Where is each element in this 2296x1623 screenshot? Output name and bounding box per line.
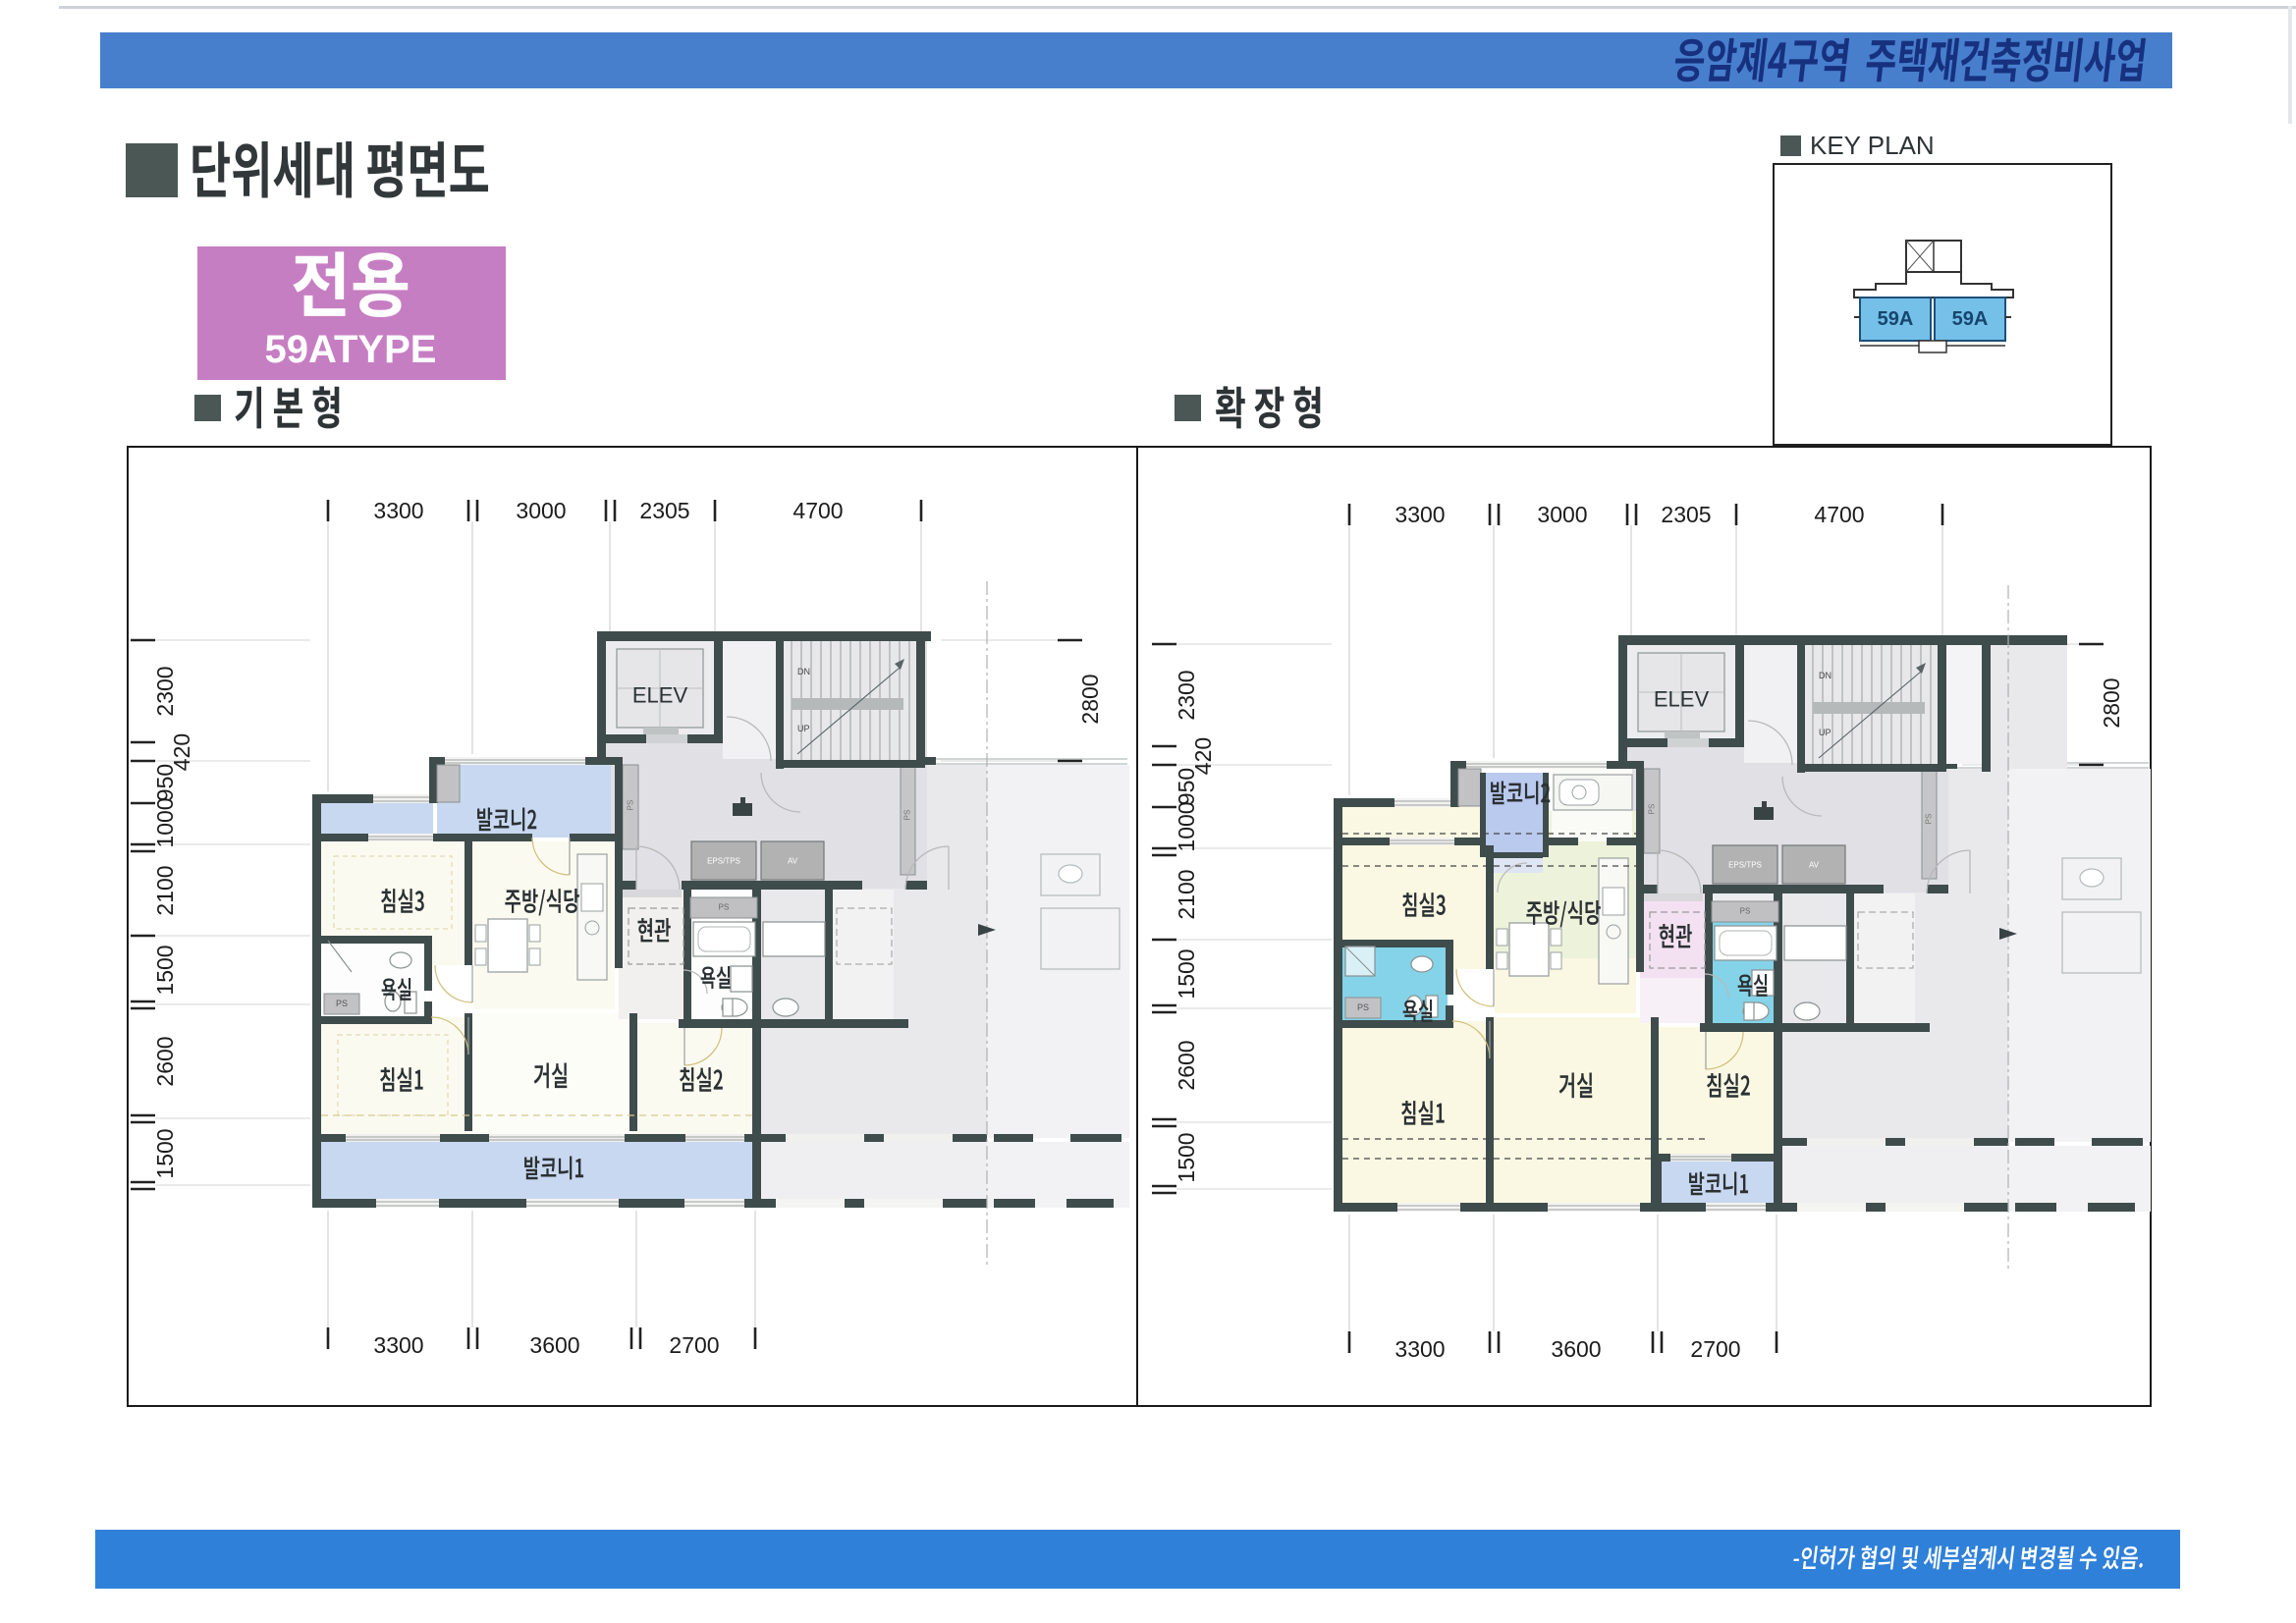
svg-text:2305: 2305 [1661, 502, 1711, 527]
svg-text:3300: 3300 [373, 498, 423, 523]
svg-text:59ATYPE: 59ATYPE [265, 328, 437, 371]
svg-text:PS: PS [1740, 907, 1751, 916]
svg-text:PS: PS [627, 800, 635, 811]
svg-text:KEY PLAN: KEY PLAN [1810, 131, 1935, 160]
svg-text:1500: 1500 [152, 1128, 178, 1178]
svg-text:1500: 1500 [1174, 948, 1199, 999]
svg-text:1500: 1500 [152, 945, 178, 995]
svg-text:59A: 59A [1952, 308, 1989, 330]
svg-text:AV: AV [1809, 861, 1820, 870]
svg-text:2800: 2800 [1077, 674, 1103, 724]
svg-text:EPS/TPS: EPS/TPS [707, 857, 740, 866]
svg-text:UP: UP [797, 724, 810, 733]
svg-text:2100: 2100 [1174, 869, 1199, 919]
svg-text:2700: 2700 [1690, 1336, 1740, 1362]
svg-text:3600: 3600 [1551, 1336, 1601, 1362]
svg-text:AV: AV [788, 857, 798, 866]
svg-text:59A: 59A [1878, 308, 1914, 330]
svg-text:2600: 2600 [1174, 1040, 1199, 1090]
svg-text:3000: 3000 [516, 498, 566, 523]
svg-text:2300: 2300 [152, 666, 178, 716]
svg-text:PS: PS [1925, 814, 1934, 825]
svg-text:4700: 4700 [793, 498, 843, 523]
svg-text:2100: 2100 [152, 865, 178, 915]
svg-text:2600: 2600 [152, 1036, 178, 1086]
svg-text:PS: PS [1648, 804, 1657, 815]
svg-text:ELEV: ELEV [1654, 687, 1710, 712]
svg-text:3300: 3300 [1394, 1336, 1445, 1362]
svg-text:1000: 1000 [1174, 801, 1199, 851]
svg-text:1500: 1500 [1174, 1132, 1199, 1182]
svg-text:3300: 3300 [1394, 502, 1445, 527]
svg-text:DN: DN [1819, 671, 1831, 680]
svg-text:2700: 2700 [669, 1332, 719, 1358]
svg-text:3600: 3600 [529, 1332, 579, 1358]
svg-text:PS: PS [903, 810, 912, 821]
svg-text:ELEV: ELEV [632, 683, 688, 708]
svg-text:950: 950 [1174, 768, 1199, 805]
svg-text:1000: 1000 [152, 797, 178, 847]
svg-text:PS: PS [1357, 1002, 1369, 1012]
svg-text:4700: 4700 [1814, 502, 1864, 527]
svg-text:UP: UP [1819, 728, 1831, 737]
svg-text:2300: 2300 [1174, 670, 1199, 720]
svg-text:3300: 3300 [373, 1332, 423, 1358]
svg-text:3000: 3000 [1537, 502, 1587, 527]
svg-text:EPS/TPS: EPS/TPS [1728, 861, 1762, 870]
svg-text:PS: PS [719, 903, 730, 912]
svg-text:950: 950 [152, 764, 178, 801]
svg-text:2305: 2305 [639, 498, 689, 523]
svg-text:PS: PS [336, 999, 348, 1008]
svg-text:2800: 2800 [2099, 677, 2124, 728]
svg-text:DN: DN [797, 667, 810, 676]
